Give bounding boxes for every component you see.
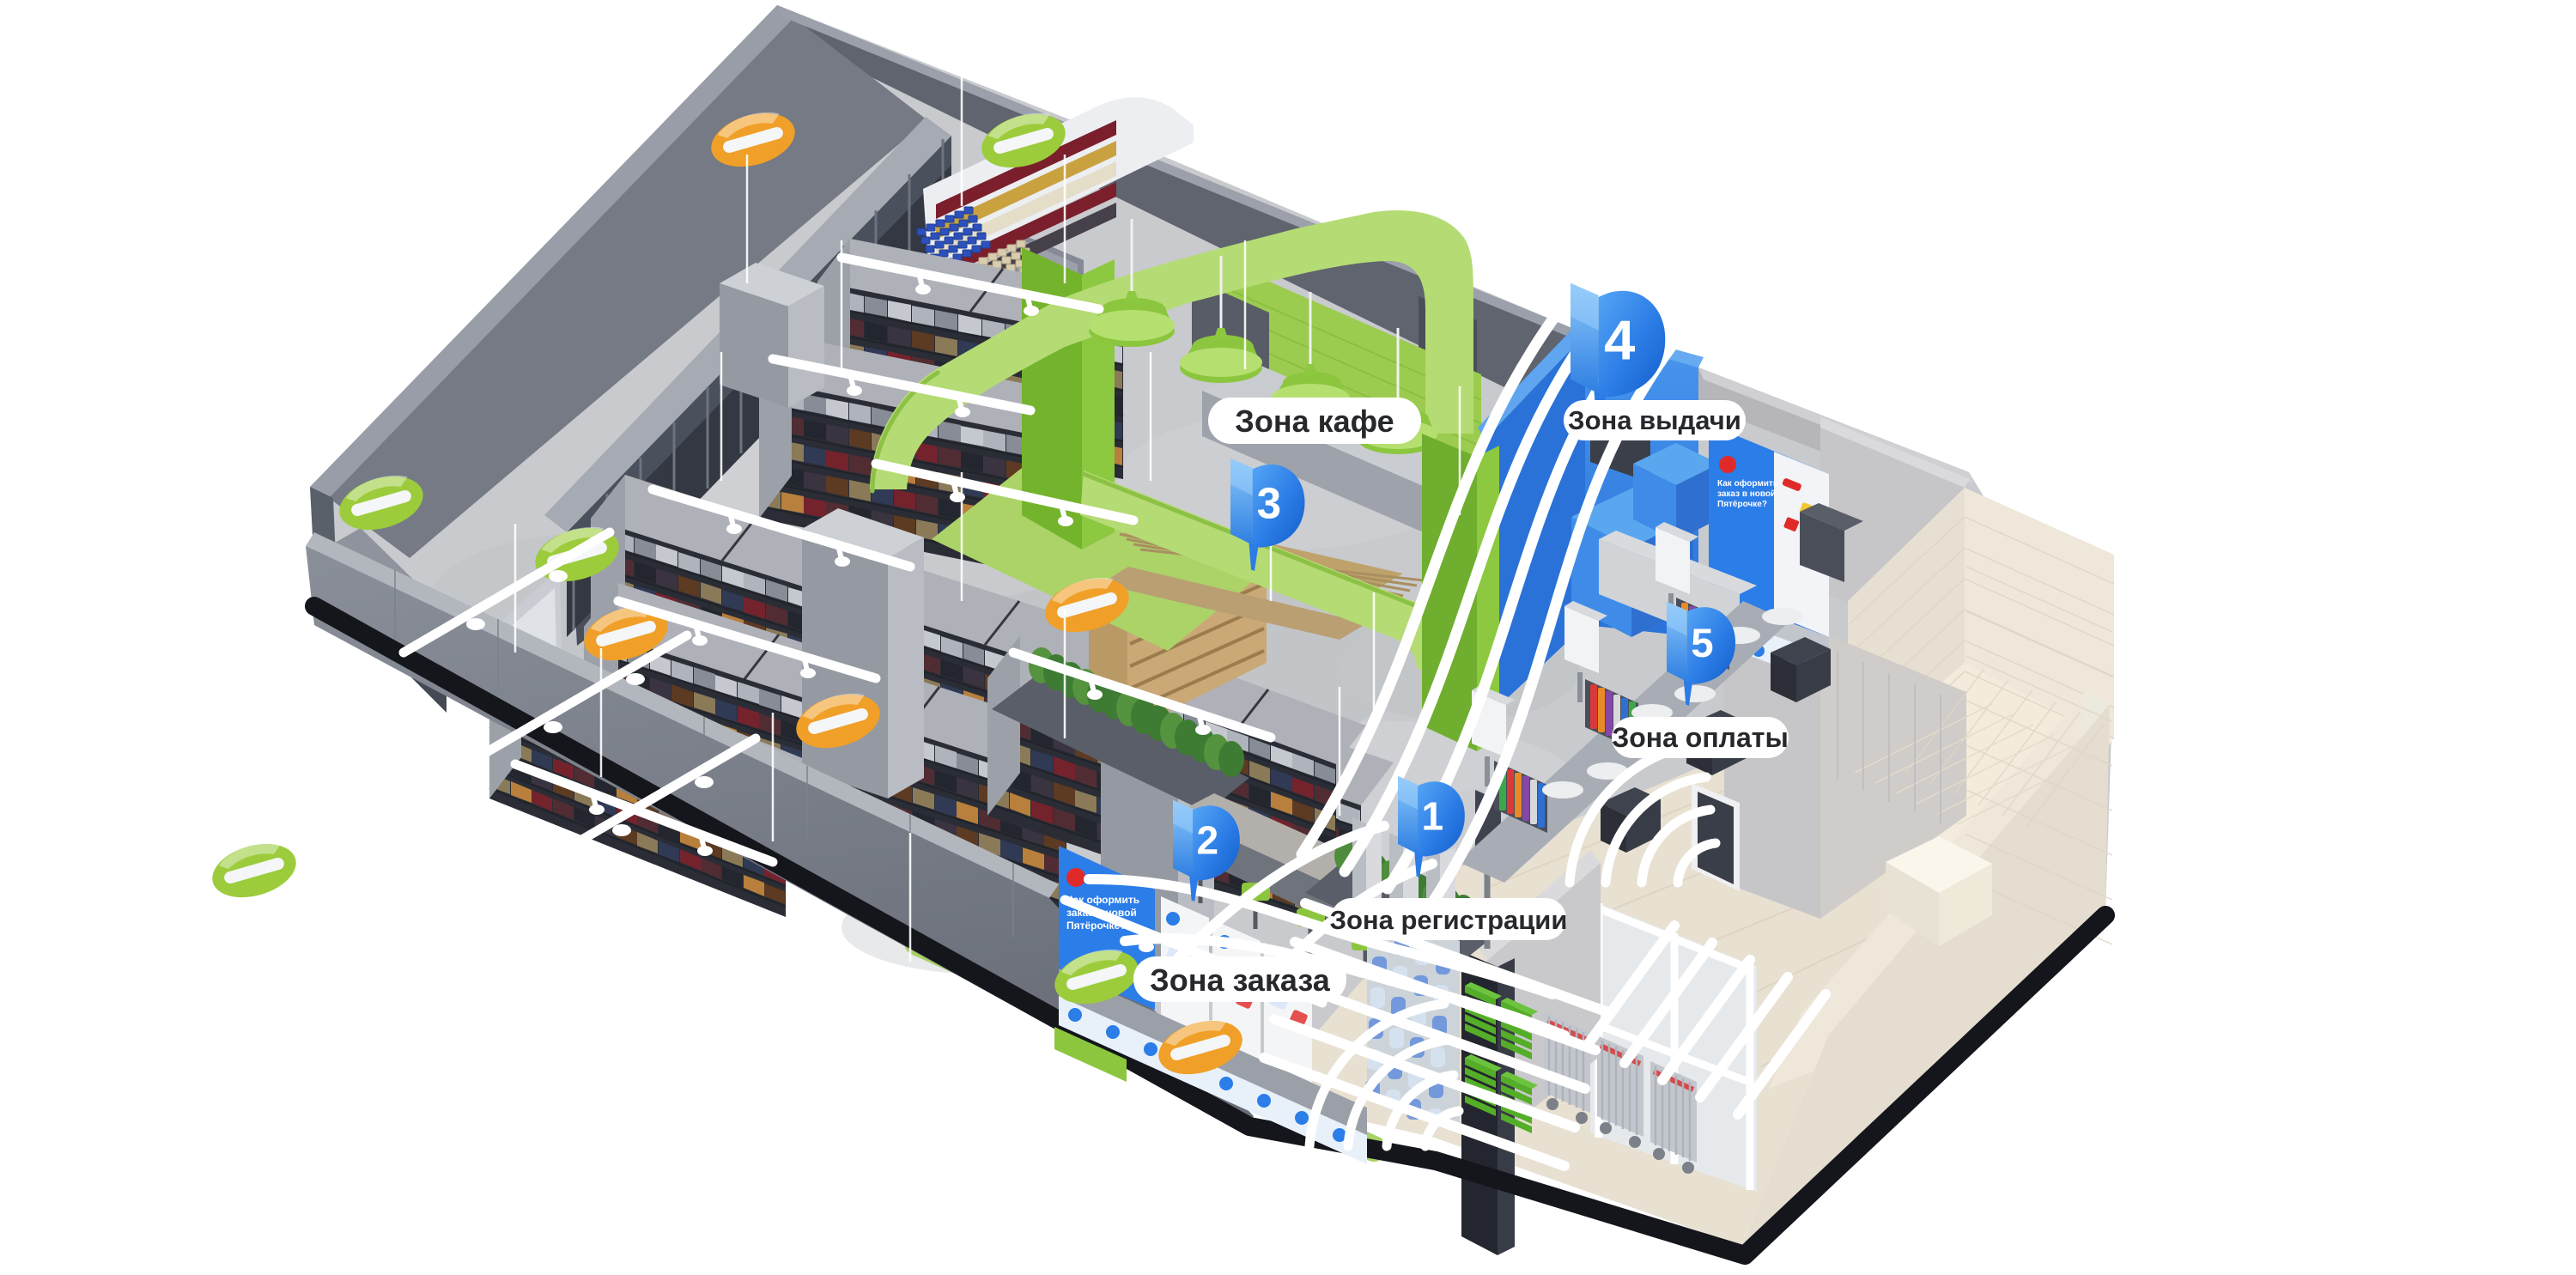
svg-text:2: 2 bbox=[1196, 818, 1218, 863]
svg-text:Пятёрочке?: Пятёрочке? bbox=[1717, 500, 1767, 509]
svg-text:Зона оплаты: Зона оплаты bbox=[1612, 722, 1789, 753]
svg-text:заказ в новой: заказ в новой bbox=[1717, 489, 1776, 499]
svg-text:5: 5 bbox=[1691, 621, 1713, 666]
svg-text:1: 1 bbox=[1421, 794, 1443, 839]
svg-text:Зона кафе: Зона кафе bbox=[1235, 404, 1394, 439]
svg-text:Зона регистрации: Зона регистрации bbox=[1330, 905, 1568, 935]
svg-text:4: 4 bbox=[1604, 308, 1635, 371]
svg-text:Как оформить: Как оформить bbox=[1717, 478, 1778, 489]
svg-text:3: 3 bbox=[1257, 478, 1281, 527]
svg-text:Зона выдачи: Зона выдачи bbox=[1568, 405, 1741, 435]
svg-text:Зона заказа: Зона заказа bbox=[1150, 962, 1331, 998]
